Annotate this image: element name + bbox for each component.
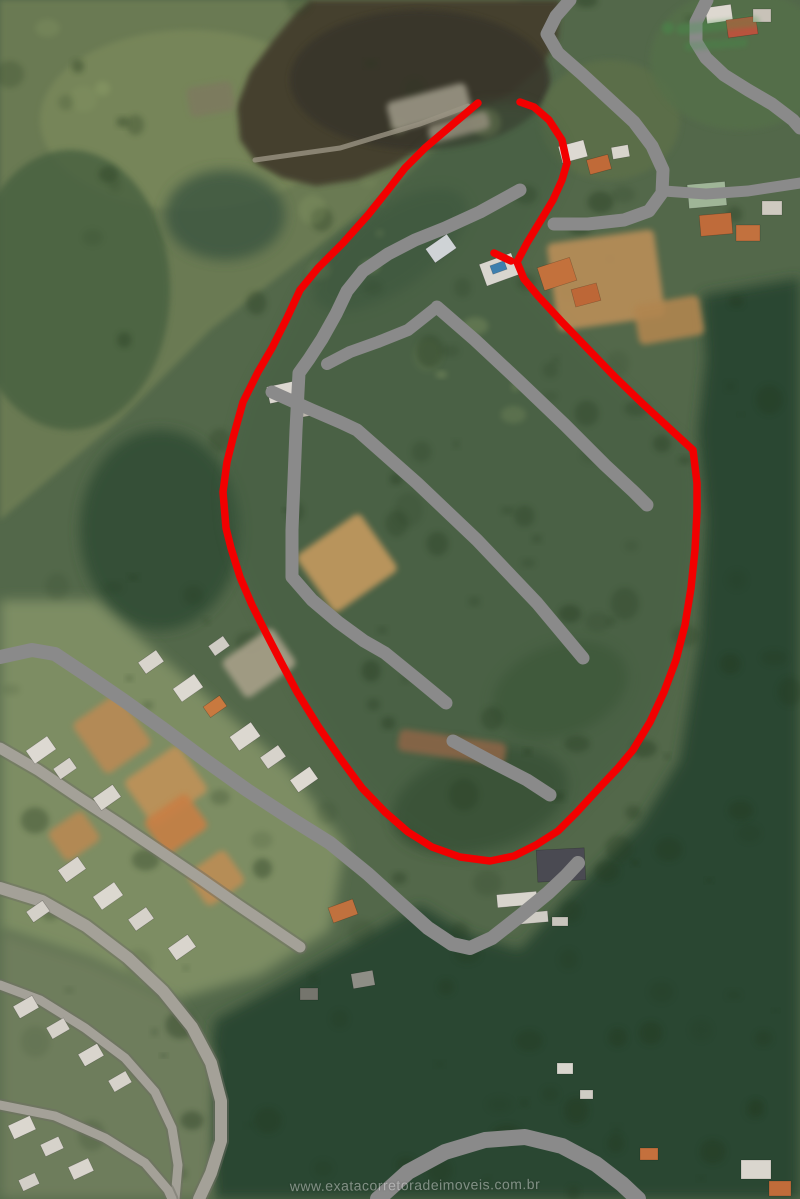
tree-mottle (35, 19, 60, 37)
satellite-map: www.exatacorretoradeimoveis.com.br (0, 0, 800, 1199)
tree-mottle (83, 229, 103, 245)
tree-mottle (64, 987, 74, 993)
tree-mottle (381, 717, 395, 730)
tree-mottle (436, 371, 448, 378)
tree-mottle (611, 186, 635, 203)
tree-mottle (624, 540, 638, 551)
tree-mottle (253, 858, 272, 878)
logo-mark-line (676, 16, 761, 36)
tree-mottle (426, 532, 448, 556)
tree-mottle (441, 345, 460, 357)
tree-mottle (438, 979, 454, 995)
tree-mottle (608, 1028, 627, 1048)
tree-mottle (559, 605, 582, 623)
tree-mottle (411, 441, 431, 462)
tree-mottle (360, 178, 377, 188)
tree-mottle (21, 807, 49, 833)
tree-mottle (254, 1107, 281, 1133)
tree-mottle (127, 115, 144, 135)
tree-mottle (95, 81, 110, 96)
tree-mottle (468, 596, 480, 606)
tree-mottle (738, 413, 744, 417)
terrain-patch (165, 170, 285, 260)
tree-mottle (639, 1021, 663, 1045)
tree-mottle (473, 870, 502, 896)
tree-mottle (487, 1096, 513, 1112)
tree-mottle (605, 835, 632, 861)
tree-mottle (756, 385, 783, 414)
tree-mottle (348, 919, 375, 943)
tree-mottle (180, 1111, 203, 1130)
tree-mottle (117, 332, 131, 348)
tree-mottle (625, 805, 641, 819)
tree-mottle (552, 356, 560, 364)
tree-mottle (481, 707, 503, 730)
tree-mottle (202, 618, 210, 625)
logo-watermark (662, 14, 782, 66)
tree-mottle (2, 684, 20, 695)
tree-mottle (46, 573, 69, 600)
tree-mottle (367, 698, 381, 710)
tree-mottle (655, 838, 682, 861)
tree-mottle (542, 1087, 559, 1102)
tree-mottle (516, 1030, 543, 1051)
tree-mottle (725, 381, 736, 391)
tree-mottle (125, 675, 133, 681)
tree-mottle (314, 1160, 333, 1177)
tree-mottle (729, 295, 744, 308)
tree-mottle (700, 1139, 726, 1164)
tree-mottle (524, 748, 532, 755)
tree-mottle (543, 362, 559, 378)
tree-mottle (690, 1019, 712, 1041)
tree-mottle (454, 278, 471, 297)
tree-mottle (532, 535, 543, 544)
tree-mottle (594, 860, 619, 882)
building (699, 213, 733, 237)
tree-mottle (72, 60, 84, 73)
tree-mottle (521, 558, 535, 567)
tree-mottle (365, 59, 377, 67)
tree-mottle (452, 440, 459, 448)
tree-mottle (362, 660, 381, 682)
tree-mottle (678, 456, 691, 465)
tree-mottle (331, 1010, 348, 1028)
map-canvas (0, 0, 800, 1199)
tree-mottle (70, 86, 98, 113)
building (580, 1090, 593, 1099)
tree-mottle (755, 1030, 772, 1046)
tree-mottle (761, 650, 787, 665)
tree-mottle (377, 626, 387, 634)
building (769, 1181, 791, 1196)
building (741, 1160, 771, 1179)
tree-mottle (611, 587, 639, 619)
tree-mottle (449, 778, 479, 810)
tree-mottle (697, 1176, 704, 1181)
tree-mottle (520, 1099, 529, 1107)
tree-mottle (128, 574, 138, 580)
tree-mottle (738, 824, 761, 842)
tree-mottle (631, 860, 638, 866)
tree-mottle (392, 872, 407, 884)
tree-mottle (501, 406, 526, 424)
tree-mottle (251, 831, 273, 848)
tree-mottle (664, 753, 670, 759)
logo-mark-line (684, 38, 748, 51)
tree-mottle (246, 291, 266, 315)
tree-mottle (728, 800, 753, 820)
tree-mottle (151, 1028, 159, 1036)
tree-mottle (574, 401, 598, 426)
tree-mottle (309, 974, 318, 982)
building (736, 225, 760, 241)
building (611, 145, 630, 160)
tree-mottle (745, 1099, 764, 1119)
tree-mottle (585, 612, 611, 632)
tree-mottle (160, 1054, 167, 1058)
tree-mottle (564, 1097, 589, 1124)
tree-mottle (612, 1125, 621, 1134)
tree-mottle (298, 195, 326, 225)
tree-mottle (416, 335, 443, 367)
tree-mottle (394, 493, 423, 527)
tree-mottle (559, 949, 578, 969)
building (552, 917, 568, 926)
tree-mottle (210, 790, 230, 805)
building (557, 1063, 573, 1074)
tree-mottle (58, 95, 73, 110)
tree-mottle (727, 990, 741, 1000)
building (300, 988, 318, 1000)
watermark-text: www.exatacorretoradeimoveis.com.br (290, 1176, 541, 1194)
tree-mottle (245, 1122, 253, 1128)
tree-mottle (564, 735, 590, 752)
tree-mottle (720, 653, 741, 674)
tree-mottle (501, 506, 514, 514)
terrain-patch (80, 430, 240, 630)
tree-mottle (183, 585, 203, 605)
tree-mottle (316, 802, 337, 825)
tree-mottle (21, 1026, 50, 1057)
tree-mottle (607, 1134, 624, 1153)
tree-mottle (588, 191, 614, 213)
tree-mottle (375, 229, 384, 237)
tree-mottle (773, 1008, 779, 1012)
tree-mottle (435, 1061, 444, 1067)
tree-mottle (183, 965, 189, 971)
tree-mottle (649, 981, 674, 1002)
logo-mark-dot (662, 22, 674, 34)
tree-mottle (727, 570, 747, 590)
tree-mottle (514, 505, 534, 526)
tree-mottle (363, 280, 382, 295)
tree-mottle (706, 878, 713, 883)
tree-mottle (99, 166, 118, 183)
building (762, 201, 782, 215)
tree-mottle (653, 435, 671, 452)
building (640, 1148, 658, 1160)
tree-mottle (104, 582, 123, 594)
